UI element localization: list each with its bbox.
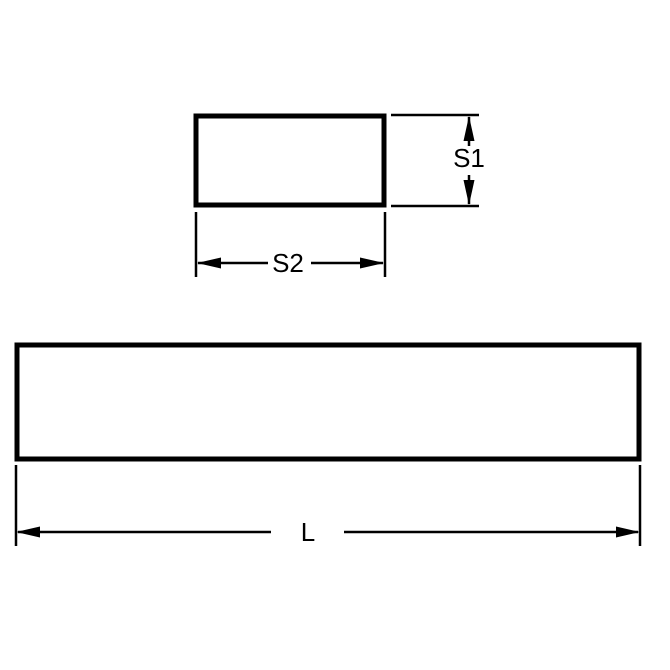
s2-dimension-label: S2 bbox=[272, 248, 304, 278]
s1-dimension-label: S1 bbox=[453, 143, 485, 173]
technical-dimension-drawing: S1 S2 L bbox=[0, 0, 670, 670]
drawing-canvas: S1 S2 L bbox=[0, 0, 670, 670]
canvas-background bbox=[0, 0, 670, 670]
l-dimension-label: L bbox=[301, 517, 315, 547]
